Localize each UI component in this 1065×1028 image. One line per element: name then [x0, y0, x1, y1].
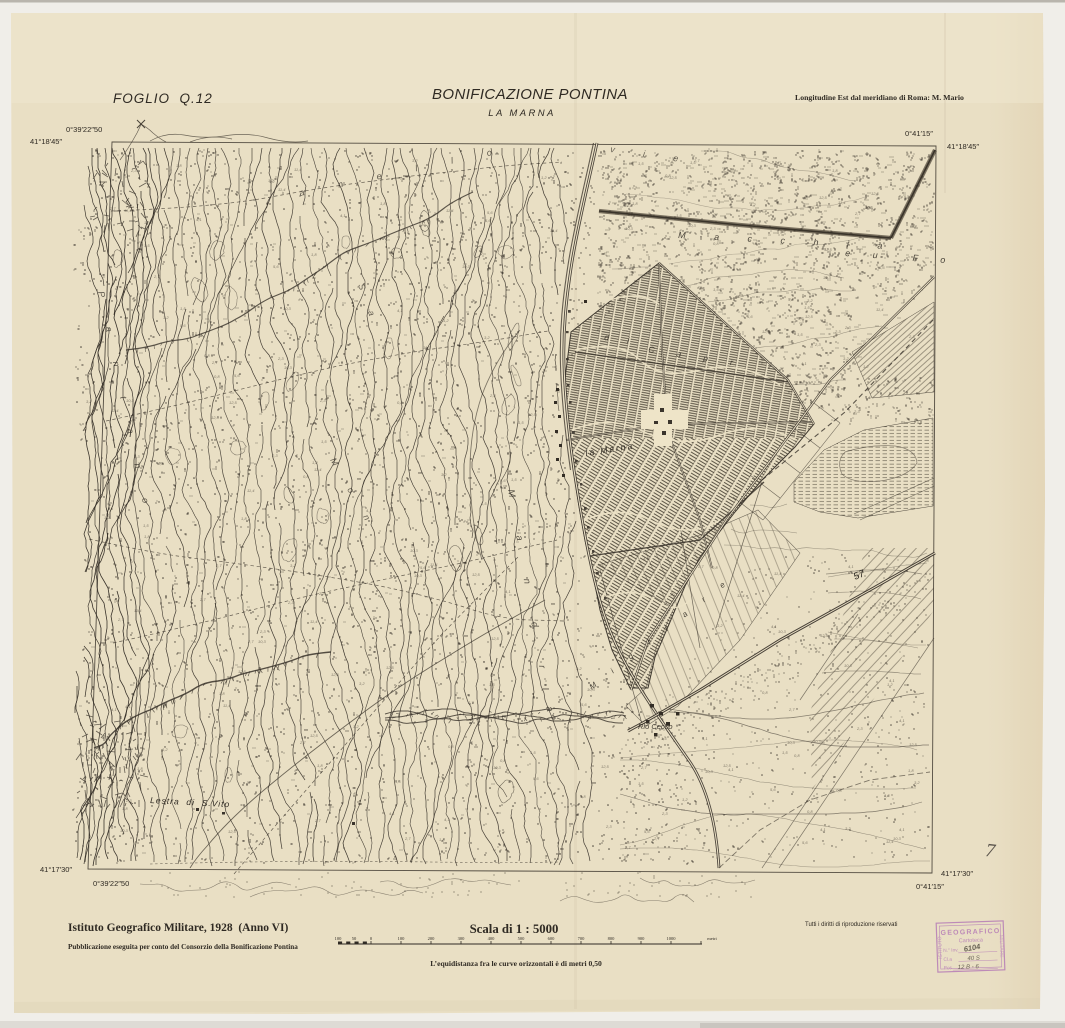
svg-text:41°17′30″: 41°17′30″: [40, 865, 72, 874]
svg-text:0°41′15″: 0°41′15″: [916, 882, 944, 891]
svg-text:Longitudine Est dal meridiano: Longitudine Est dal meridiano di Roma: M…: [795, 93, 964, 102]
svg-text:41°18′45″: 41°18′45″: [30, 137, 62, 146]
svg-text:FOGLIO Q.12: FOGLIO Q.12: [113, 91, 213, 106]
svg-text:41°18′45″: 41°18′45″: [947, 142, 979, 151]
svg-text:41°17′30″: 41°17′30″: [941, 869, 973, 878]
svg-text:LA MARNA: LA MARNA: [488, 108, 555, 119]
svg-text:0°39′22″50: 0°39′22″50: [93, 879, 129, 888]
svg-text:BONIFICAZIONE PONTINA: BONIFICAZIONE PONTINA: [432, 86, 628, 103]
svg-text:0°39′22″50: 0°39′22″50: [66, 125, 102, 134]
svg-text:0°41′15″: 0°41′15″: [905, 129, 933, 138]
